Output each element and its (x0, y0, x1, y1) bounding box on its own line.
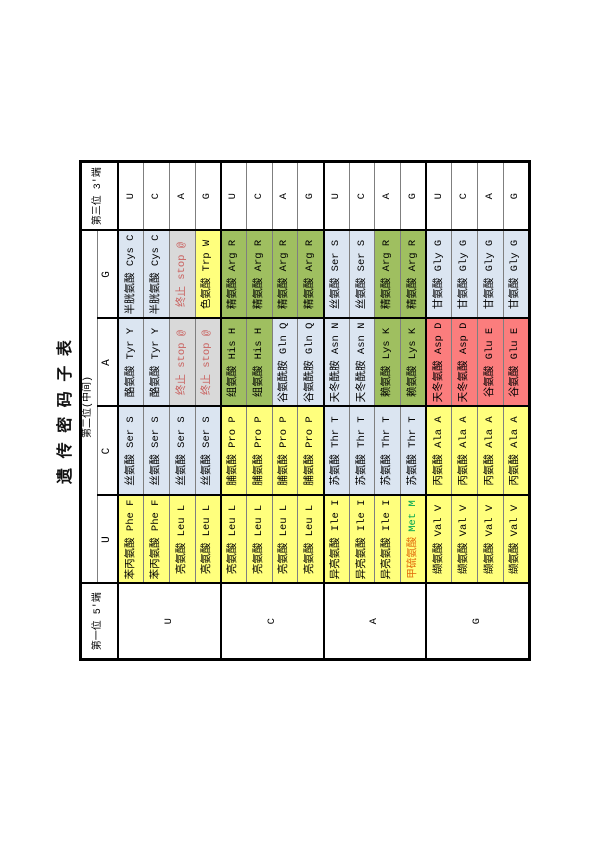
amino-acid-cell: 天冬氨酸 Asp D (452, 319, 478, 407)
amino-acid-cell: 苏氨酸 Thr T (401, 407, 427, 496)
amino-acid-cell: 丙氨酸 Ala A (478, 407, 504, 496)
third-letter: A (478, 161, 504, 230)
third-letter: G (298, 161, 324, 230)
amino-acid-cell: 异亮氨酸 Ile I (375, 496, 401, 584)
third-letter: G (401, 161, 427, 230)
amino-acid-cell: 丝氨酸 Ser S (169, 407, 195, 496)
amino-acid-cell: 精氨酸 Arg R (272, 230, 298, 318)
met-label-cn: 甲硫氨酸 (407, 537, 419, 579)
third-letter: C (246, 161, 272, 230)
codon-row: C 亮氨酸 Leu L 脯氨酸 Pro P 组氨酸 His H 精氨酸 Arg … (221, 161, 247, 659)
stop-codon-cell: 终止 stop @ (169, 230, 195, 318)
amino-acid-cell: 甘氨酸 Gly G (426, 230, 452, 318)
amino-acid-cell: 丙氨酸 Ala A (426, 407, 452, 496)
amino-acid-cell: 丙氨酸 Ala A (503, 407, 529, 496)
amino-acid-cell: 亮氨酸 Leu L (246, 496, 272, 584)
amino-acid-cell: 赖氨酸 Lys K (401, 319, 427, 407)
amino-acid-cell: 丝氨酸 Ser S (349, 230, 375, 318)
third-letter: G (503, 161, 529, 230)
codon-row: U 苯丙氨酸 Phe F 丝氨酸 Ser S 酪氨酸 Tyr Y 半胱氨酸 Cy… (118, 161, 144, 659)
third-letter: A (375, 161, 401, 230)
amino-acid-cell: 精氨酸 Arg R (246, 230, 272, 318)
amino-acid-cell: 亮氨酸 Leu L (169, 496, 195, 584)
amino-acid-cell: 组氨酸 His H (221, 319, 247, 407)
amino-acid-cell: 酪氨酸 Tyr Y (118, 319, 144, 407)
third-letter: U (426, 161, 452, 230)
amino-acid-cell: 天冬酰胺 Asn N (349, 319, 375, 407)
amino-acid-cell: 赖氨酸 Lys K (375, 319, 401, 407)
first-position-header: 第一位 5'端 (81, 584, 119, 660)
amino-acid-cell: 组氨酸 His H (246, 319, 272, 407)
document-page: 遗 传 密 码 子 表 第一位 5'端 第二位(中间) 第三位 3'端 U C … (0, 0, 600, 850)
third-letter: A (169, 161, 195, 230)
third-letter: C (349, 161, 375, 230)
amino-acid-cell: 缬氨酸 Val V (426, 496, 452, 584)
second-letter-c: C (98, 407, 119, 496)
amino-acid-cell: 精氨酸 Arg R (401, 230, 427, 318)
amino-acid-cell: 天冬酰胺 Asn N (324, 319, 350, 407)
amino-acid-cell: 甘氨酸 Gly G (478, 230, 504, 318)
amino-acid-cell: 脯氨酸 Pro P (221, 407, 247, 496)
stop-codon-cell: 终止 stop @ (195, 319, 221, 407)
first-letter-g: G (426, 584, 529, 660)
amino-acid-cell: 丙氨酸 Ala A (452, 407, 478, 496)
amino-acid-cell: 脯氨酸 Pro P (246, 407, 272, 496)
codon-row: G 缬氨酸 Val V 丙氨酸 Ala A 天冬氨酸 Asp D 甘氨酸 Gly… (426, 161, 452, 659)
third-letter: U (324, 161, 350, 230)
amino-acid-cell: 半胱氨酸 Cys C (118, 230, 144, 318)
met-label-en: Met M (407, 500, 419, 532)
rotated-sheet: 遗 传 密 码 子 表 第一位 5'端 第二位(中间) 第三位 3'端 U C … (53, 161, 531, 661)
second-letter-a: A (98, 319, 119, 407)
third-letter: C (144, 161, 170, 230)
amino-acid-cell: 亮氨酸 Leu L (272, 496, 298, 584)
amino-acid-cell: 苯丙氨酸 Phe F (118, 496, 144, 584)
amino-acid-cell: 谷氨酸 Glu E (503, 319, 529, 407)
amino-acid-cell: 色氨酸 Trp W (195, 230, 221, 318)
amino-acid-cell: 甘氨酸 Gly G (503, 230, 529, 318)
amino-acid-cell: 谷氨酰胺 Gln Q (272, 319, 298, 407)
amino-acid-cell: 苏氨酸 Thr T (324, 407, 350, 496)
amino-acid-cell: 异亮氨酸 Ile I (349, 496, 375, 584)
amino-acid-cell: 丝氨酸 Ser S (324, 230, 350, 318)
amino-acid-cell: 缬氨酸 Val V (478, 496, 504, 584)
amino-acid-cell: 精氨酸 Arg R (298, 230, 324, 318)
amino-acid-cell: 酪氨酸 Tyr Y (144, 319, 170, 407)
amino-acid-cell: 缬氨酸 Val V (452, 496, 478, 584)
second-position-header: 第二位(中间) (81, 230, 98, 583)
amino-acid-cell: 谷氨酸 Glu E (478, 319, 504, 407)
amino-acid-cell: 亮氨酸 Leu L (221, 496, 247, 584)
amino-acid-cell: 脯氨酸 Pro P (298, 407, 324, 496)
amino-acid-cell: 缬氨酸 Val V (503, 496, 529, 584)
amino-acid-cell: 甘氨酸 Gly G (452, 230, 478, 318)
stop-codon-cell: 终止 stop @ (169, 319, 195, 407)
amino-acid-cell: 丝氨酸 Ser S (118, 407, 144, 496)
third-position-header: 第三位 3'端 (81, 161, 119, 230)
codon-row: A 异亮氨酸 Ile I 苏氨酸 Thr T 天冬酰胺 Asn N 丝氨酸 Se… (324, 161, 350, 659)
amino-acid-cell: 半胱氨酸 Cys C (144, 230, 170, 318)
third-letter: U (221, 161, 247, 230)
amino-acid-cell: 异亮氨酸 Ile I (324, 496, 350, 584)
first-letter-c: C (221, 584, 324, 660)
amino-acid-cell: 精氨酸 Arg R (375, 230, 401, 318)
start-codon-cell-met: 甲硫氨酸Met M (401, 496, 427, 584)
amino-acid-cell: 精氨酸 Arg R (221, 230, 247, 318)
second-letter-u: U (98, 496, 119, 584)
first-letter-u: U (118, 584, 221, 660)
genetic-code-table: 第一位 5'端 第二位(中间) 第三位 3'端 U C A G U 苯丙氨酸 P… (79, 160, 531, 661)
amino-acid-cell: 亮氨酸 Leu L (195, 496, 221, 584)
amino-acid-cell: 丝氨酸 Ser S (195, 407, 221, 496)
header-row-1: 第一位 5'端 第二位(中间) 第三位 3'端 (81, 161, 98, 659)
amino-acid-cell: 苯丙氨酸 Phe F (144, 496, 170, 584)
amino-acid-cell: 苏氨酸 Thr T (349, 407, 375, 496)
third-letter: U (118, 161, 144, 230)
third-letter: A (272, 161, 298, 230)
third-letter: G (195, 161, 221, 230)
document-title: 遗 传 密 码 子 表 (53, 161, 79, 661)
second-letter-g: G (98, 230, 119, 318)
amino-acid-cell: 脯氨酸 Pro P (272, 407, 298, 496)
third-letter: C (452, 161, 478, 230)
amino-acid-cell: 天冬氨酸 Asp D (426, 319, 452, 407)
amino-acid-cell: 丝氨酸 Ser S (144, 407, 170, 496)
amino-acid-cell: 苏氨酸 Thr T (375, 407, 401, 496)
amino-acid-cell: 亮氨酸 Leu L (298, 496, 324, 584)
first-letter-a: A (324, 584, 427, 660)
amino-acid-cell: 谷氨酰胺 Gln Q (298, 319, 324, 407)
